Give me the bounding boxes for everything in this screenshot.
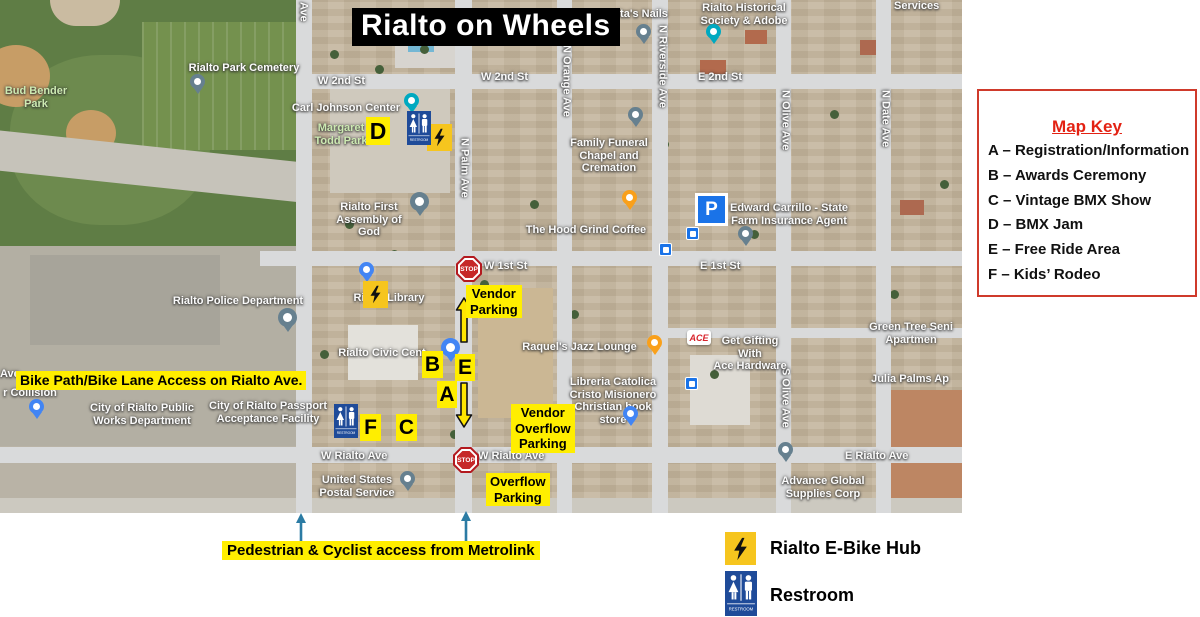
street-label: E 1st St (700, 260, 740, 273)
street-label: Ave (297, 2, 310, 22)
rialto-on-wheels-flyer: { "title": "Rialto on Wheels", "map_key"… (0, 0, 1200, 617)
restroom-figures-icon: RESTROOM (407, 111, 431, 145)
ebike-hub-icon (363, 281, 388, 308)
place-label-julia-palms: Julia Palms Ap (864, 373, 956, 386)
place-label-libreria: Libreria Catolica Cristo Misionero Chris… (561, 376, 665, 427)
place-label-public-works: City of Rialto Public Works Department (82, 402, 202, 427)
street-label: N Orange Ave (560, 45, 573, 117)
place-label-advance-global: Advance Global Supplies Corp (774, 475, 872, 500)
terrain-cemetery (142, 22, 304, 150)
map-key-entry: E – Free Ride Area (988, 239, 1195, 261)
stop-sign-text: STOP (457, 451, 475, 469)
police-pin (278, 308, 297, 327)
svg-text:RESTROOM: RESTROOM (729, 607, 754, 612)
road-2nd-st (296, 74, 962, 89)
svg-text:RESTROOM: RESTROOM (410, 138, 429, 142)
map-key-title: Map Key (979, 117, 1195, 137)
school-pin (404, 93, 419, 108)
lightning-bolt-icon (368, 285, 383, 304)
pedestrian-access-label: Pedestrian & Cyclist access from Metroli… (222, 541, 540, 560)
map-key-entry: D – BMX Jam (988, 214, 1195, 236)
page-title: Rialto on Wheels (352, 8, 620, 46)
cemetery-pin (190, 74, 205, 89)
map-key-panel: Map Key A – Registration/Information B –… (977, 89, 1197, 297)
place-label-historical: Rialto Historical Society & Adobe (688, 2, 800, 27)
vendor-overflow-parking-label: Vendor Overflow Parking (511, 404, 575, 453)
church-pin (410, 192, 429, 211)
legend-restroom-label: Restroom (770, 585, 854, 606)
place-label-carl-johnson: Carl Johnson Center (285, 102, 407, 115)
marker-e: E (455, 354, 475, 381)
street-label: N Date Ave (879, 90, 892, 147)
place-label-cemetery: Rialto Park Cemetery (183, 62, 305, 75)
library-pin (359, 262, 374, 277)
marker-a: A (437, 381, 457, 408)
place-label-hood-grind: The Hood Grind Coffee (520, 224, 652, 237)
collision-pin (29, 399, 44, 414)
bus-stop-icon (659, 243, 672, 256)
nails-pin (636, 24, 651, 39)
marker-b: B (422, 351, 443, 378)
funeral-pin (628, 107, 643, 122)
map-key-entry: A – Registration/Information (988, 140, 1195, 162)
street-label: E Rialto Ave (845, 450, 908, 463)
postal-pin (400, 471, 415, 486)
terrain-trees (330, 50, 339, 59)
lightning-bolt-icon (731, 537, 750, 561)
place-label-margaret-todd: Margaret Todd Park (312, 122, 370, 147)
bus-stop-icon (685, 377, 698, 390)
place-label-state-farm: Edward Carrillo - State Farm Insurance A… (723, 202, 855, 227)
place-label-police: Rialto Police Department (162, 295, 314, 308)
place-label-library: Rialto Library (343, 292, 435, 305)
satellite-map: W 2nd St W 2nd St E 2nd St W 1st St E 1s… (0, 0, 962, 513)
museum-pin (706, 24, 721, 39)
legend-restroom-icon: RESTROOM (725, 571, 757, 616)
restroom-figures-icon: RESTROOM (725, 571, 757, 616)
bus-stop-icon (686, 227, 699, 240)
street-label: S Olive Ave (779, 368, 792, 428)
street-label: W 2nd St (481, 71, 528, 84)
map-key-entry: F – Kids’ Rodeo (988, 264, 1195, 286)
place-label-green-tree: Green Tree Seni Apartmen (858, 321, 962, 346)
bike-path-label: Bike Path/Bike Lane Access on Rialto Ave… (16, 371, 306, 390)
place-label-services: Services (894, 0, 939, 13)
street-label: W 2nd St (318, 75, 365, 88)
place-label-family-funeral: Family Funeral Chapel and Cremation (553, 137, 665, 175)
map-key-entry: C – Vintage BMX Show (988, 190, 1195, 212)
stop-sign-text: STOP (460, 260, 478, 278)
place-label-bud-bender: Bud Bender Park (0, 85, 72, 110)
place-label-postal: United States Postal Service (316, 474, 398, 499)
bookstore-pin (623, 406, 638, 421)
overflow-parking-label: Overflow Parking (486, 473, 550, 506)
restroom-icon: RESTROOM (407, 111, 431, 145)
place-label-assembly: Rialto First Assembly of God (328, 201, 410, 239)
marker-f: F (360, 414, 381, 441)
lightning-bolt-icon (432, 128, 447, 147)
coffee-pin (622, 190, 637, 205)
state-farm-pin (738, 226, 753, 241)
street-label: E 2nd St (698, 71, 742, 84)
vendor-parking-label: Vendor Parking (466, 285, 522, 318)
restroom-icon: RESTROOM (334, 404, 358, 438)
advance-pin (778, 442, 793, 457)
place-label-civic-center: Rialto Civic Cent (331, 347, 433, 360)
legend-ebike-label: Rialto E-Bike Hub (770, 538, 921, 559)
street-label: W Rialto Ave (321, 450, 387, 463)
terrain-roof (745, 30, 767, 44)
street-label: N Olive Ave (779, 90, 792, 150)
legend-ebike-icon (725, 532, 756, 565)
street-label: N Riverside Ave (656, 25, 669, 108)
terrain-roof (900, 200, 924, 215)
vendor-overflow-arrow-down (455, 382, 473, 433)
ace-logo: ACE (687, 330, 711, 345)
restroom-figures-icon: RESTROOM (334, 404, 358, 438)
marker-c: C (396, 414, 417, 441)
parking-p-icon: P (695, 193, 728, 226)
street-label: W 1st St (484, 260, 527, 273)
marker-d: D (366, 117, 390, 145)
place-label-passport: City of Rialto Passport Acceptance Facil… (202, 400, 334, 425)
street-label: N Palm Ave (458, 138, 471, 198)
place-label-jazz-lounge: Raquel's Jazz Lounge (516, 341, 643, 354)
jazz-lounge-pin (647, 335, 662, 350)
place-label-ace-hardware: Get Gifting With Ace Hardware (711, 335, 789, 373)
svg-text:RESTROOM: RESTROOM (337, 431, 356, 435)
map-key-entry: B – Awards Ceremony (988, 165, 1195, 187)
